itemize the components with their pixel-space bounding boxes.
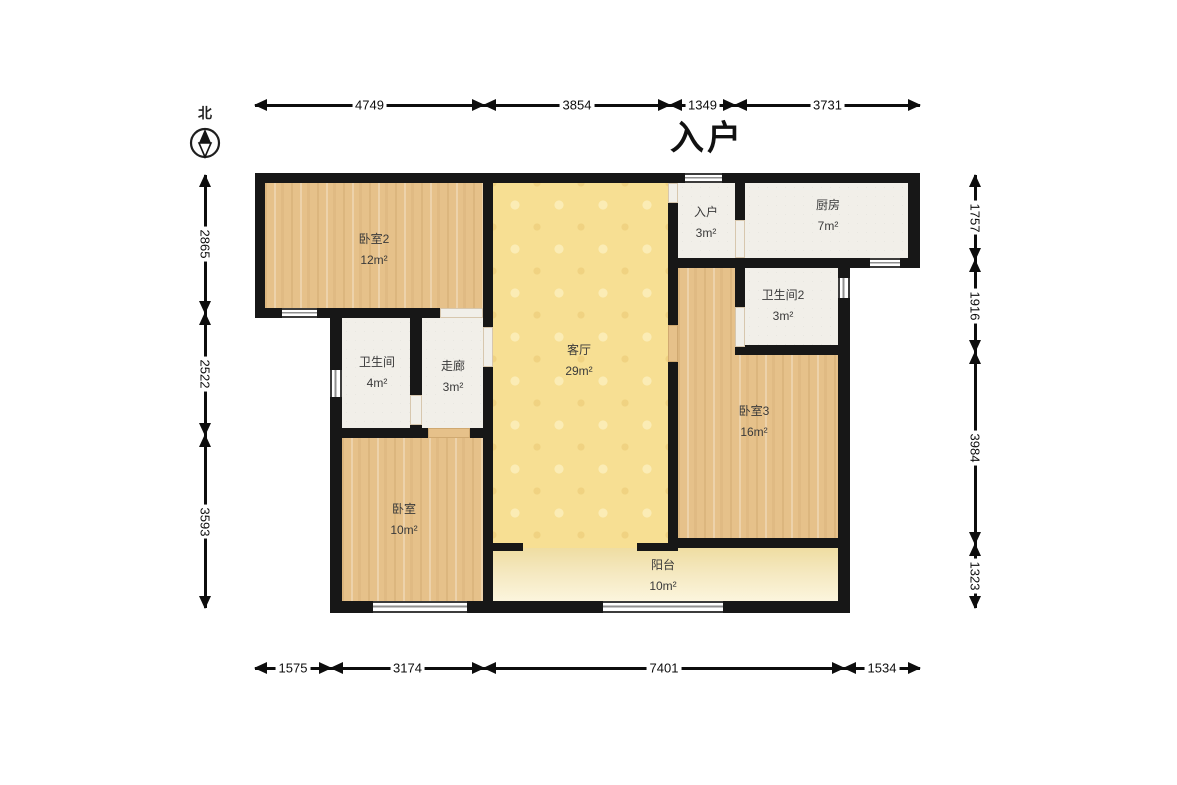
dimension-top-4749: 4749 <box>255 97 484 113</box>
entry-title: 入户 <box>670 111 744 160</box>
dimension-top-3731: 3731 <box>735 97 920 113</box>
dimension-right-1323: 1323 <box>967 544 983 608</box>
dimension-left-2522: 2522 <box>197 313 213 435</box>
dimension-bottom-7401: 7401 <box>484 660 844 676</box>
dimension-top-3854: 3854 <box>484 97 670 113</box>
dimension-right-1916: 1916 <box>967 260 983 352</box>
dimension-left-3593: 3593 <box>197 435 213 608</box>
north-label: 北 <box>198 103 212 123</box>
dimension-bottom-1534: 1534 <box>844 660 920 676</box>
dimension-bottom-3174: 3174 <box>331 660 484 676</box>
dimension-right-3984: 3984 <box>967 352 983 544</box>
floor-plan: 入户 北 卧室212m²客厅29m²入户3m²厨房7m²卧室316m²卫生间23… <box>0 0 1177 785</box>
dimension-layer: 4749385413493731157531747401153428652522… <box>0 0 1177 785</box>
dimension-bottom-1575: 1575 <box>255 660 331 676</box>
compass-icon <box>187 125 223 161</box>
north-compass: 北 <box>187 125 223 166</box>
dimension-right-1757: 1757 <box>967 175 983 260</box>
dimension-left-2865: 2865 <box>197 175 213 313</box>
